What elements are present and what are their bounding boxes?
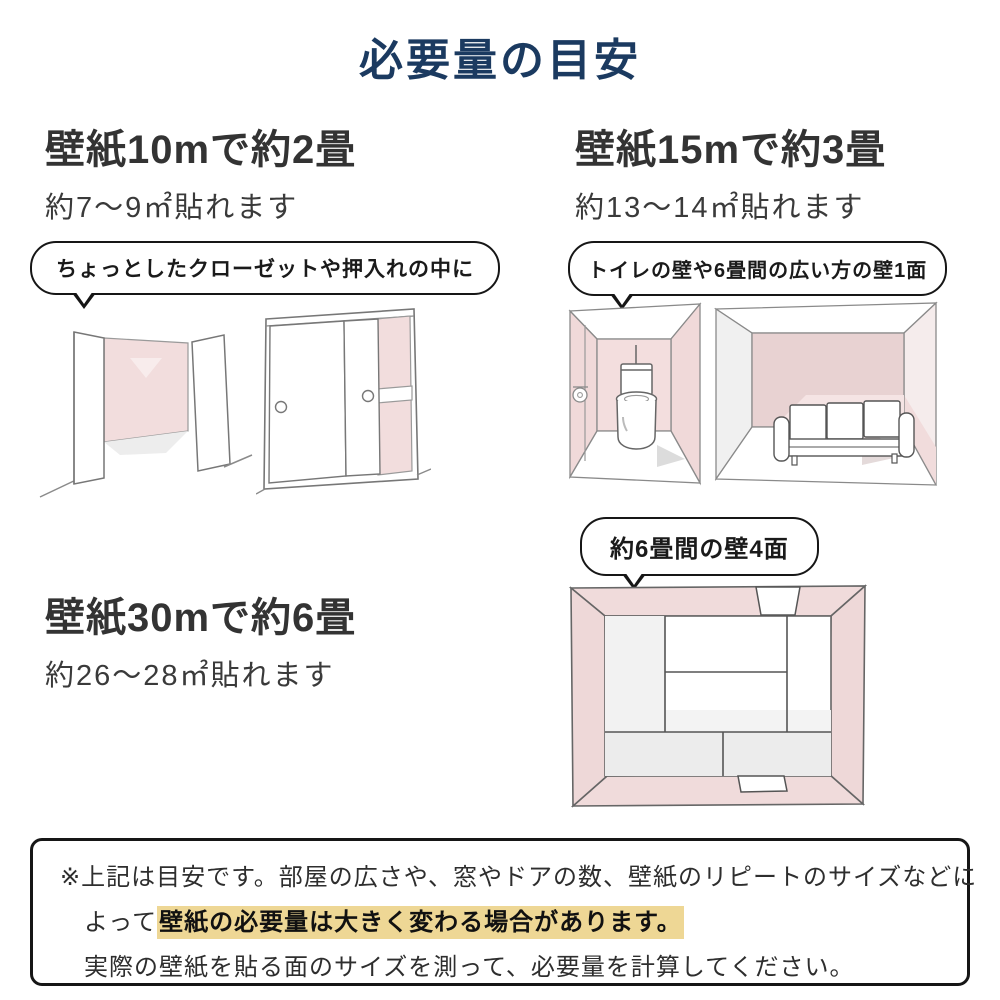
- section-30m-heading: 壁紙30mで約6畳: [45, 596, 356, 640]
- note-line-2: よって壁紙の必要量は大きく変わる場合があります。: [84, 900, 967, 945]
- section-30m-bubble: 約6畳間の壁4面: [580, 517, 819, 576]
- section-10m-bubble: ちょっとしたクローゼットや押入れの中に: [30, 241, 500, 295]
- section-15m-heading: 壁紙15mで約3畳: [575, 128, 886, 172]
- section-15m-bubble-label: トイレの壁や6畳間の広い方の壁1面: [588, 260, 927, 282]
- section-30m-bubble-label: 約6畳間の壁4面: [610, 536, 789, 563]
- sofa-room-sketch: [712, 299, 940, 489]
- note-line-2-prefix: よって: [84, 909, 157, 936]
- section-10m-heading: 壁紙10mで約2畳: [45, 128, 356, 172]
- page-title: 必要量の目安: [0, 24, 1000, 88]
- section-15m: 壁紙15mで約3畳 約13〜14㎡貼れます: [575, 128, 886, 226]
- section-10m-bubble-label: ちょっとしたクローゼットや押入れの中に: [56, 258, 474, 281]
- section-15m-bubble: トイレの壁や6畳間の広い方の壁1面: [568, 241, 947, 296]
- section-15m-subheading: 約13〜14㎡貼れます: [575, 184, 886, 226]
- note-line-3: 実際の壁紙を貼る面のサイズを測って、必要量を計算してください。: [84, 945, 967, 990]
- note-highlight: 壁紙の必要量は大きく変わる場合があります。: [157, 906, 684, 939]
- footer-note-box: ※上記は目安です。部屋の広さや、窓やドアの数、壁紙のリピートのサイズなどに よっ…: [30, 838, 970, 986]
- section-10m: 壁紙10mで約2畳 約7〜9㎡貼れます: [45, 128, 356, 226]
- section-10m-subheading: 約7〜9㎡貼れます: [45, 184, 356, 226]
- section-30m: 壁紙30mで約6畳 約26〜28㎡貼れます: [45, 596, 356, 694]
- toilet-room-sketch: [565, 299, 705, 489]
- tatami-room-sketch: [566, 582, 870, 810]
- open-closet-sketch: [38, 316, 253, 516]
- note-line-1: ※上記は目安です。部屋の広さや、窓やドアの数、壁紙のリピートのサイズなどに: [60, 855, 967, 900]
- sliding-closet-sketch: [256, 303, 431, 503]
- infographic-root: 必要量の目安 壁紙10mで約2畳 約7〜9㎡貼れます ちょっとしたクローゼットや…: [0, 0, 1000, 1000]
- section-30m-subheading: 約26〜28㎡貼れます: [45, 652, 356, 694]
